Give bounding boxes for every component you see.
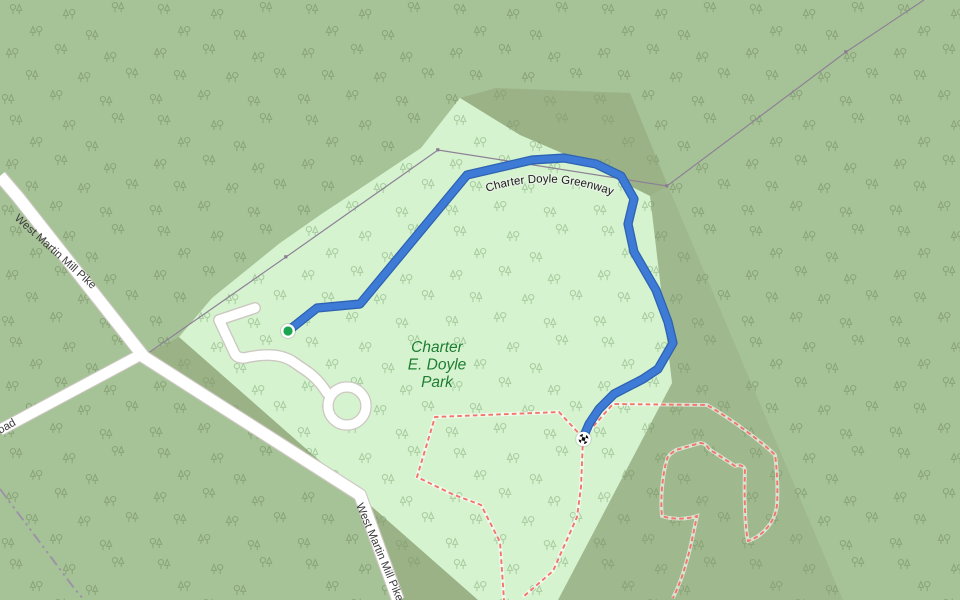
svg-text:Charter: Charter bbox=[411, 339, 464, 356]
svg-text:E. Doyle: E. Doyle bbox=[408, 357, 467, 374]
svg-text:Park: Park bbox=[421, 374, 454, 391]
